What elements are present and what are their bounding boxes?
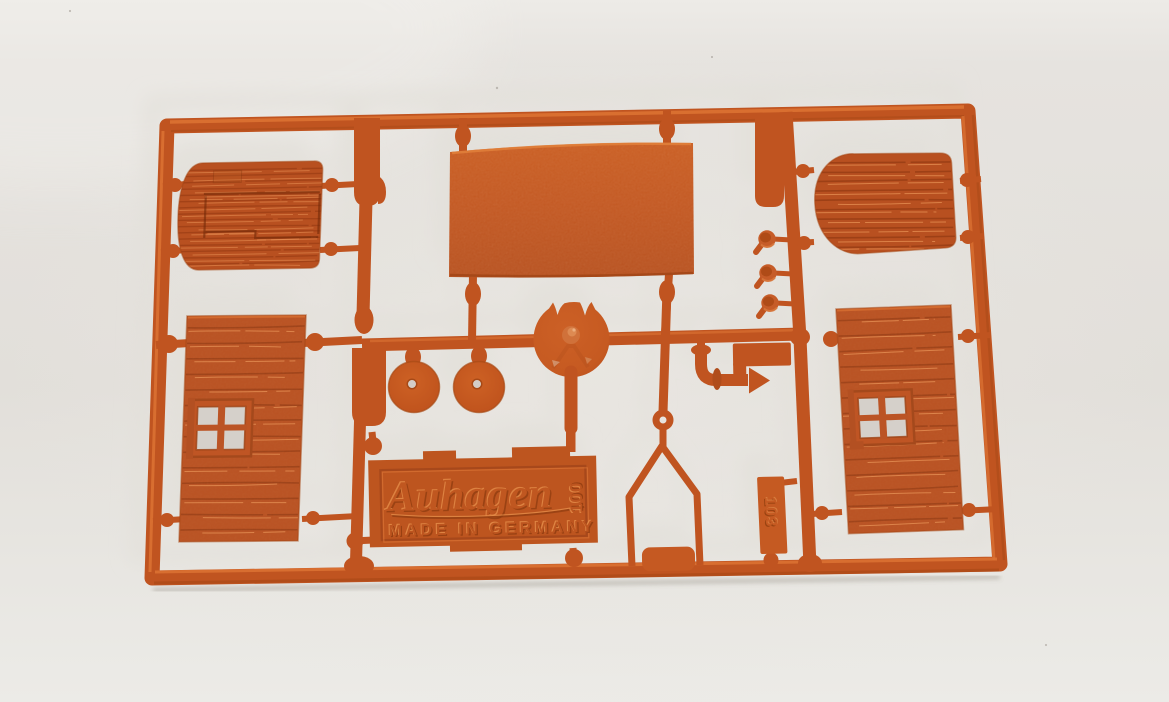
svg-text:100: 100: [567, 481, 587, 513]
svg-text:103: 103: [761, 497, 779, 529]
